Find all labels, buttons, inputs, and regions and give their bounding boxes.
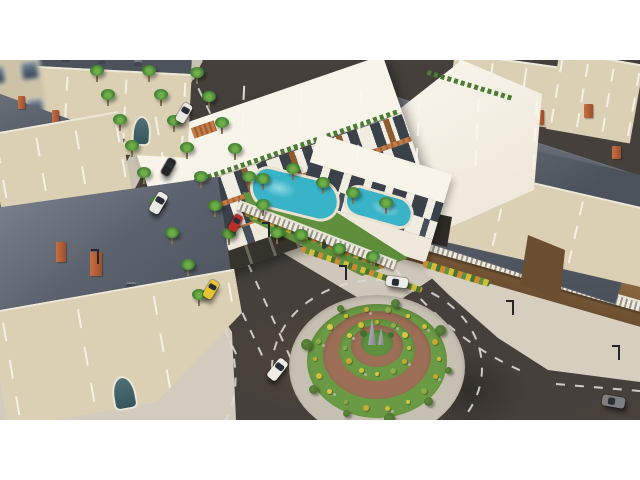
palm-tree [214, 209, 216, 217]
palm-tree [198, 298, 200, 306]
olive-tree [391, 299, 400, 308]
flower-bush [327, 389, 332, 394]
flower-bush [391, 323, 396, 328]
olive-tree [435, 325, 446, 336]
window [91, 384, 94, 401]
flower-bush [402, 359, 407, 364]
center-shrub [360, 330, 367, 337]
palm-tree [187, 268, 189, 276]
window [166, 371, 169, 388]
window [574, 227, 577, 238]
palm-tree [107, 98, 109, 106]
window [85, 347, 88, 364]
palm-tree [322, 186, 324, 194]
palm-tree [186, 151, 188, 159]
palm-tree [200, 180, 202, 188]
palm-tree [248, 180, 250, 188]
window [83, 167, 86, 183]
dormer [98, 60, 106, 64]
palm-tree [131, 149, 133, 157]
flower-bush [327, 324, 333, 330]
palm-tree [208, 100, 210, 108]
windshield [155, 196, 165, 205]
window [37, 139, 40, 155]
window [580, 203, 583, 214]
window [560, 60, 562, 71]
street-lamp [618, 345, 620, 360]
window [552, 110, 554, 121]
windshield [208, 282, 217, 290]
window [577, 115, 579, 126]
window [76, 132, 79, 148]
palm-tree [276, 236, 278, 244]
flower-bush [437, 357, 441, 361]
letterbox-top [0, 0, 640, 60]
aerial-architectural-render [0, 60, 640, 420]
window [612, 69, 614, 80]
palm-tree [228, 237, 230, 245]
palm-tree [196, 76, 198, 84]
screenshot-canvas [0, 0, 640, 480]
window [633, 99, 635, 110]
chimney [612, 146, 621, 159]
flower-bush [407, 346, 411, 350]
window [493, 234, 496, 245]
street-lamp [268, 222, 270, 237]
palm-tree [143, 176, 145, 184]
window [20, 61, 39, 80]
flower-bush [375, 372, 379, 376]
window [498, 210, 501, 221]
windshield [274, 361, 284, 371]
windshield [165, 161, 173, 168]
street-lamp [512, 300, 514, 315]
palm-tree [385, 206, 387, 214]
window [43, 174, 46, 190]
palm-tree [160, 98, 162, 106]
palm-tree [372, 260, 374, 268]
flower-bush [406, 314, 410, 318]
flower-bush [385, 307, 391, 313]
flower-bush [316, 373, 322, 379]
window [603, 119, 605, 130]
window [126, 81, 127, 93]
chimney [56, 242, 66, 262]
palm-tree [262, 182, 264, 190]
palm-tree [221, 126, 223, 134]
stone-rock [322, 344, 325, 347]
flower-bush [344, 314, 348, 318]
palm-tree [173, 124, 175, 132]
window [523, 69, 526, 88]
stone-rock [369, 312, 372, 315]
chimney [584, 104, 593, 118]
window [582, 90, 584, 101]
palm-tree [234, 152, 236, 160]
windshield [181, 106, 190, 114]
chimney [90, 252, 102, 276]
stone-rock [408, 363, 411, 366]
windshield [232, 217, 240, 224]
window [0, 66, 6, 85]
letterbox-bottom [0, 420, 640, 480]
window [67, 78, 68, 90]
palm-tree [292, 172, 294, 180]
street-lamp [97, 249, 99, 264]
window [16, 397, 19, 414]
flower-bush [313, 357, 317, 361]
palm-tree [262, 208, 264, 216]
window [569, 251, 572, 262]
flower-bush [364, 307, 369, 312]
stone-rock [333, 393, 336, 396]
window [9, 361, 12, 378]
window [122, 160, 125, 176]
window [637, 74, 639, 85]
palm-tree [148, 74, 150, 82]
window [3, 324, 6, 341]
window [628, 124, 630, 135]
pedestrian [322, 241, 326, 249]
flower-bush [343, 346, 347, 350]
windshield [607, 396, 615, 405]
window [607, 94, 609, 105]
stone-rock [364, 373, 367, 376]
window [556, 85, 558, 96]
flower-bush [359, 368, 364, 373]
window [3, 181, 6, 197]
dormer [62, 60, 70, 62]
palm-tree [300, 238, 302, 246]
palm-tree [96, 74, 98, 82]
window [229, 284, 232, 301]
window [78, 310, 81, 327]
flower-bush [347, 333, 352, 338]
window [184, 84, 185, 96]
flower-bush [402, 332, 408, 338]
palm-tree [119, 123, 121, 131]
palm-tree [352, 196, 354, 204]
window [66, 104, 67, 116]
windshield [392, 278, 400, 286]
window [160, 334, 163, 351]
palm-tree [171, 236, 173, 244]
window-grid [552, 60, 638, 135]
flower-bush [375, 320, 379, 324]
street-lamp [345, 265, 347, 280]
chimney [18, 96, 25, 109]
center-shrub [388, 332, 394, 338]
top-right-facade-b [546, 60, 640, 144]
dormer [134, 60, 142, 66]
window [586, 65, 588, 76]
flower-bush [390, 368, 396, 374]
flower-bush [433, 374, 438, 379]
olive-tree [343, 410, 350, 417]
palm-tree [338, 252, 340, 260]
window [153, 297, 156, 314]
